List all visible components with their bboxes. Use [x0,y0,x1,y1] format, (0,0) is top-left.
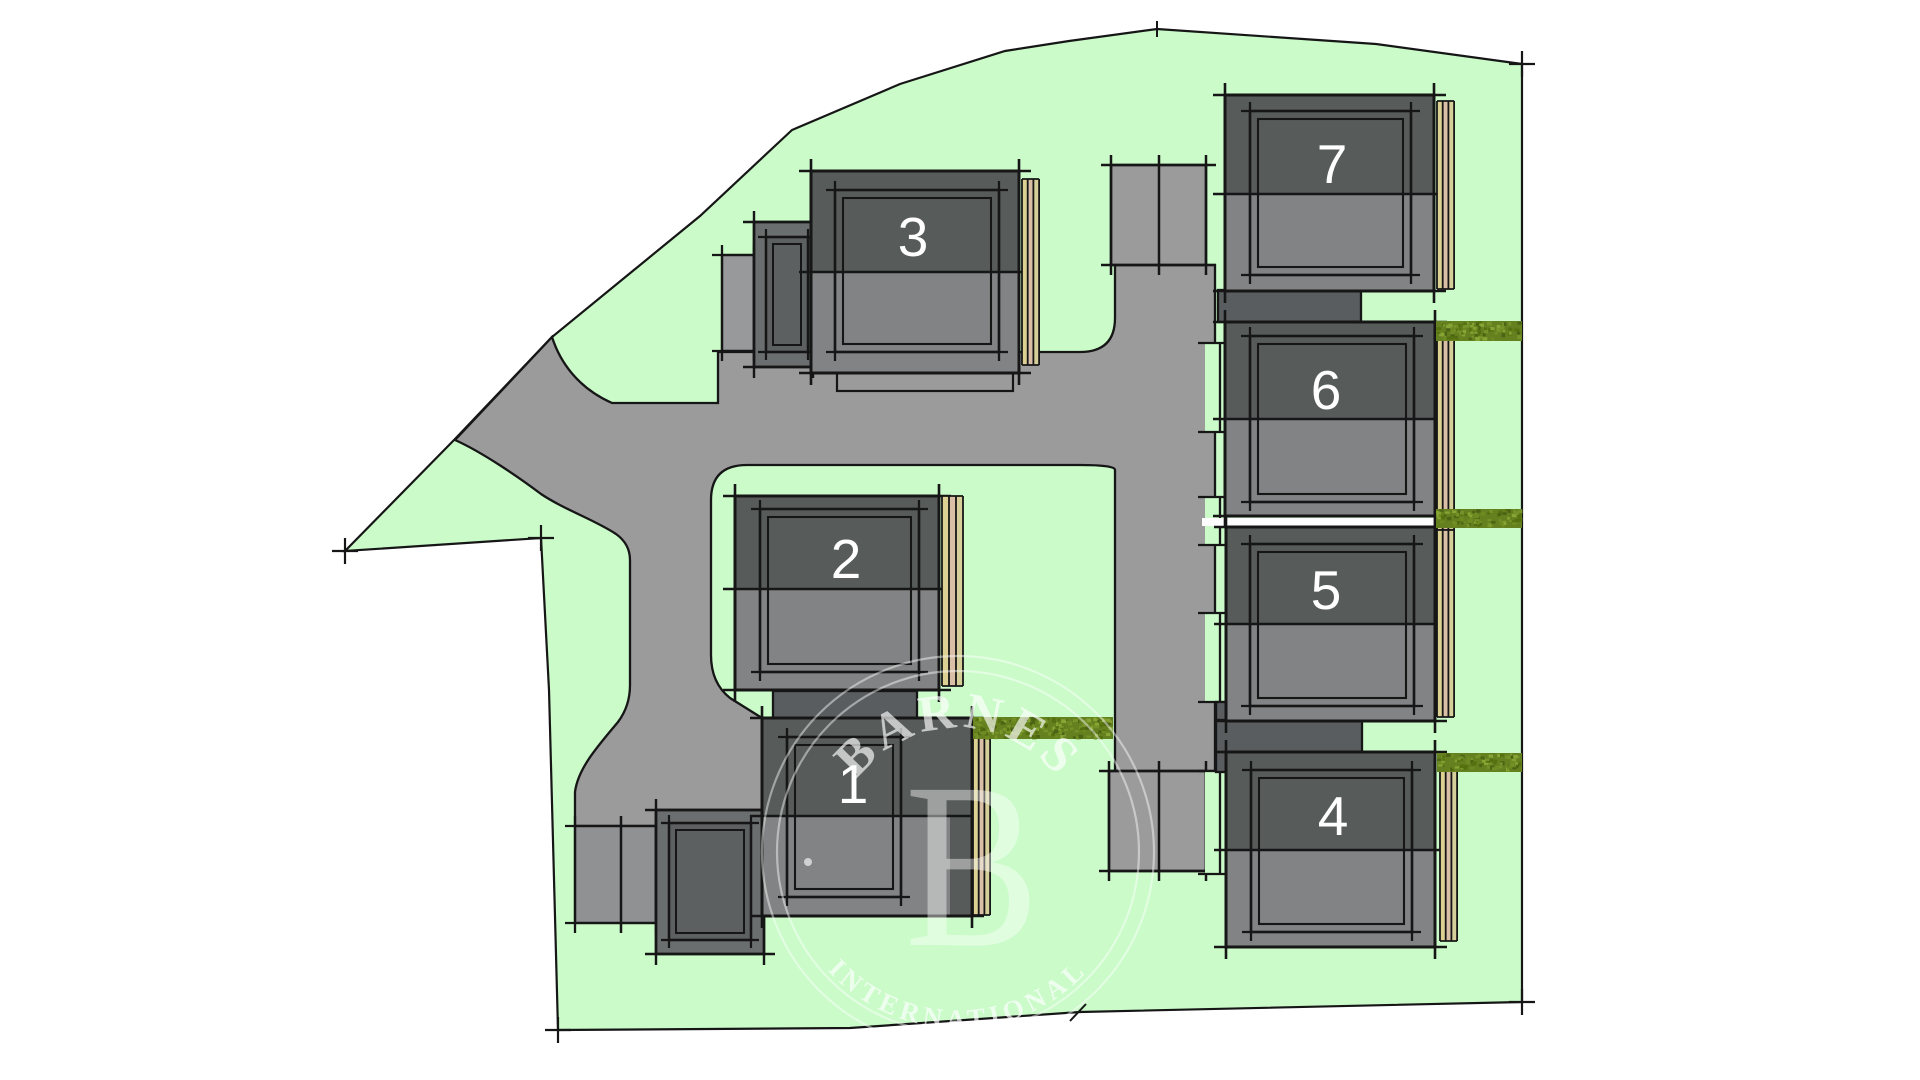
svg-text:4: 4 [1318,785,1349,847]
svg-text:2: 2 [831,528,862,590]
svg-text:3: 3 [898,206,929,268]
svg-text:7: 7 [1317,133,1348,195]
svg-text:B: B [905,734,1039,997]
svg-text:5: 5 [1311,559,1342,621]
svg-text:6: 6 [1311,359,1342,421]
